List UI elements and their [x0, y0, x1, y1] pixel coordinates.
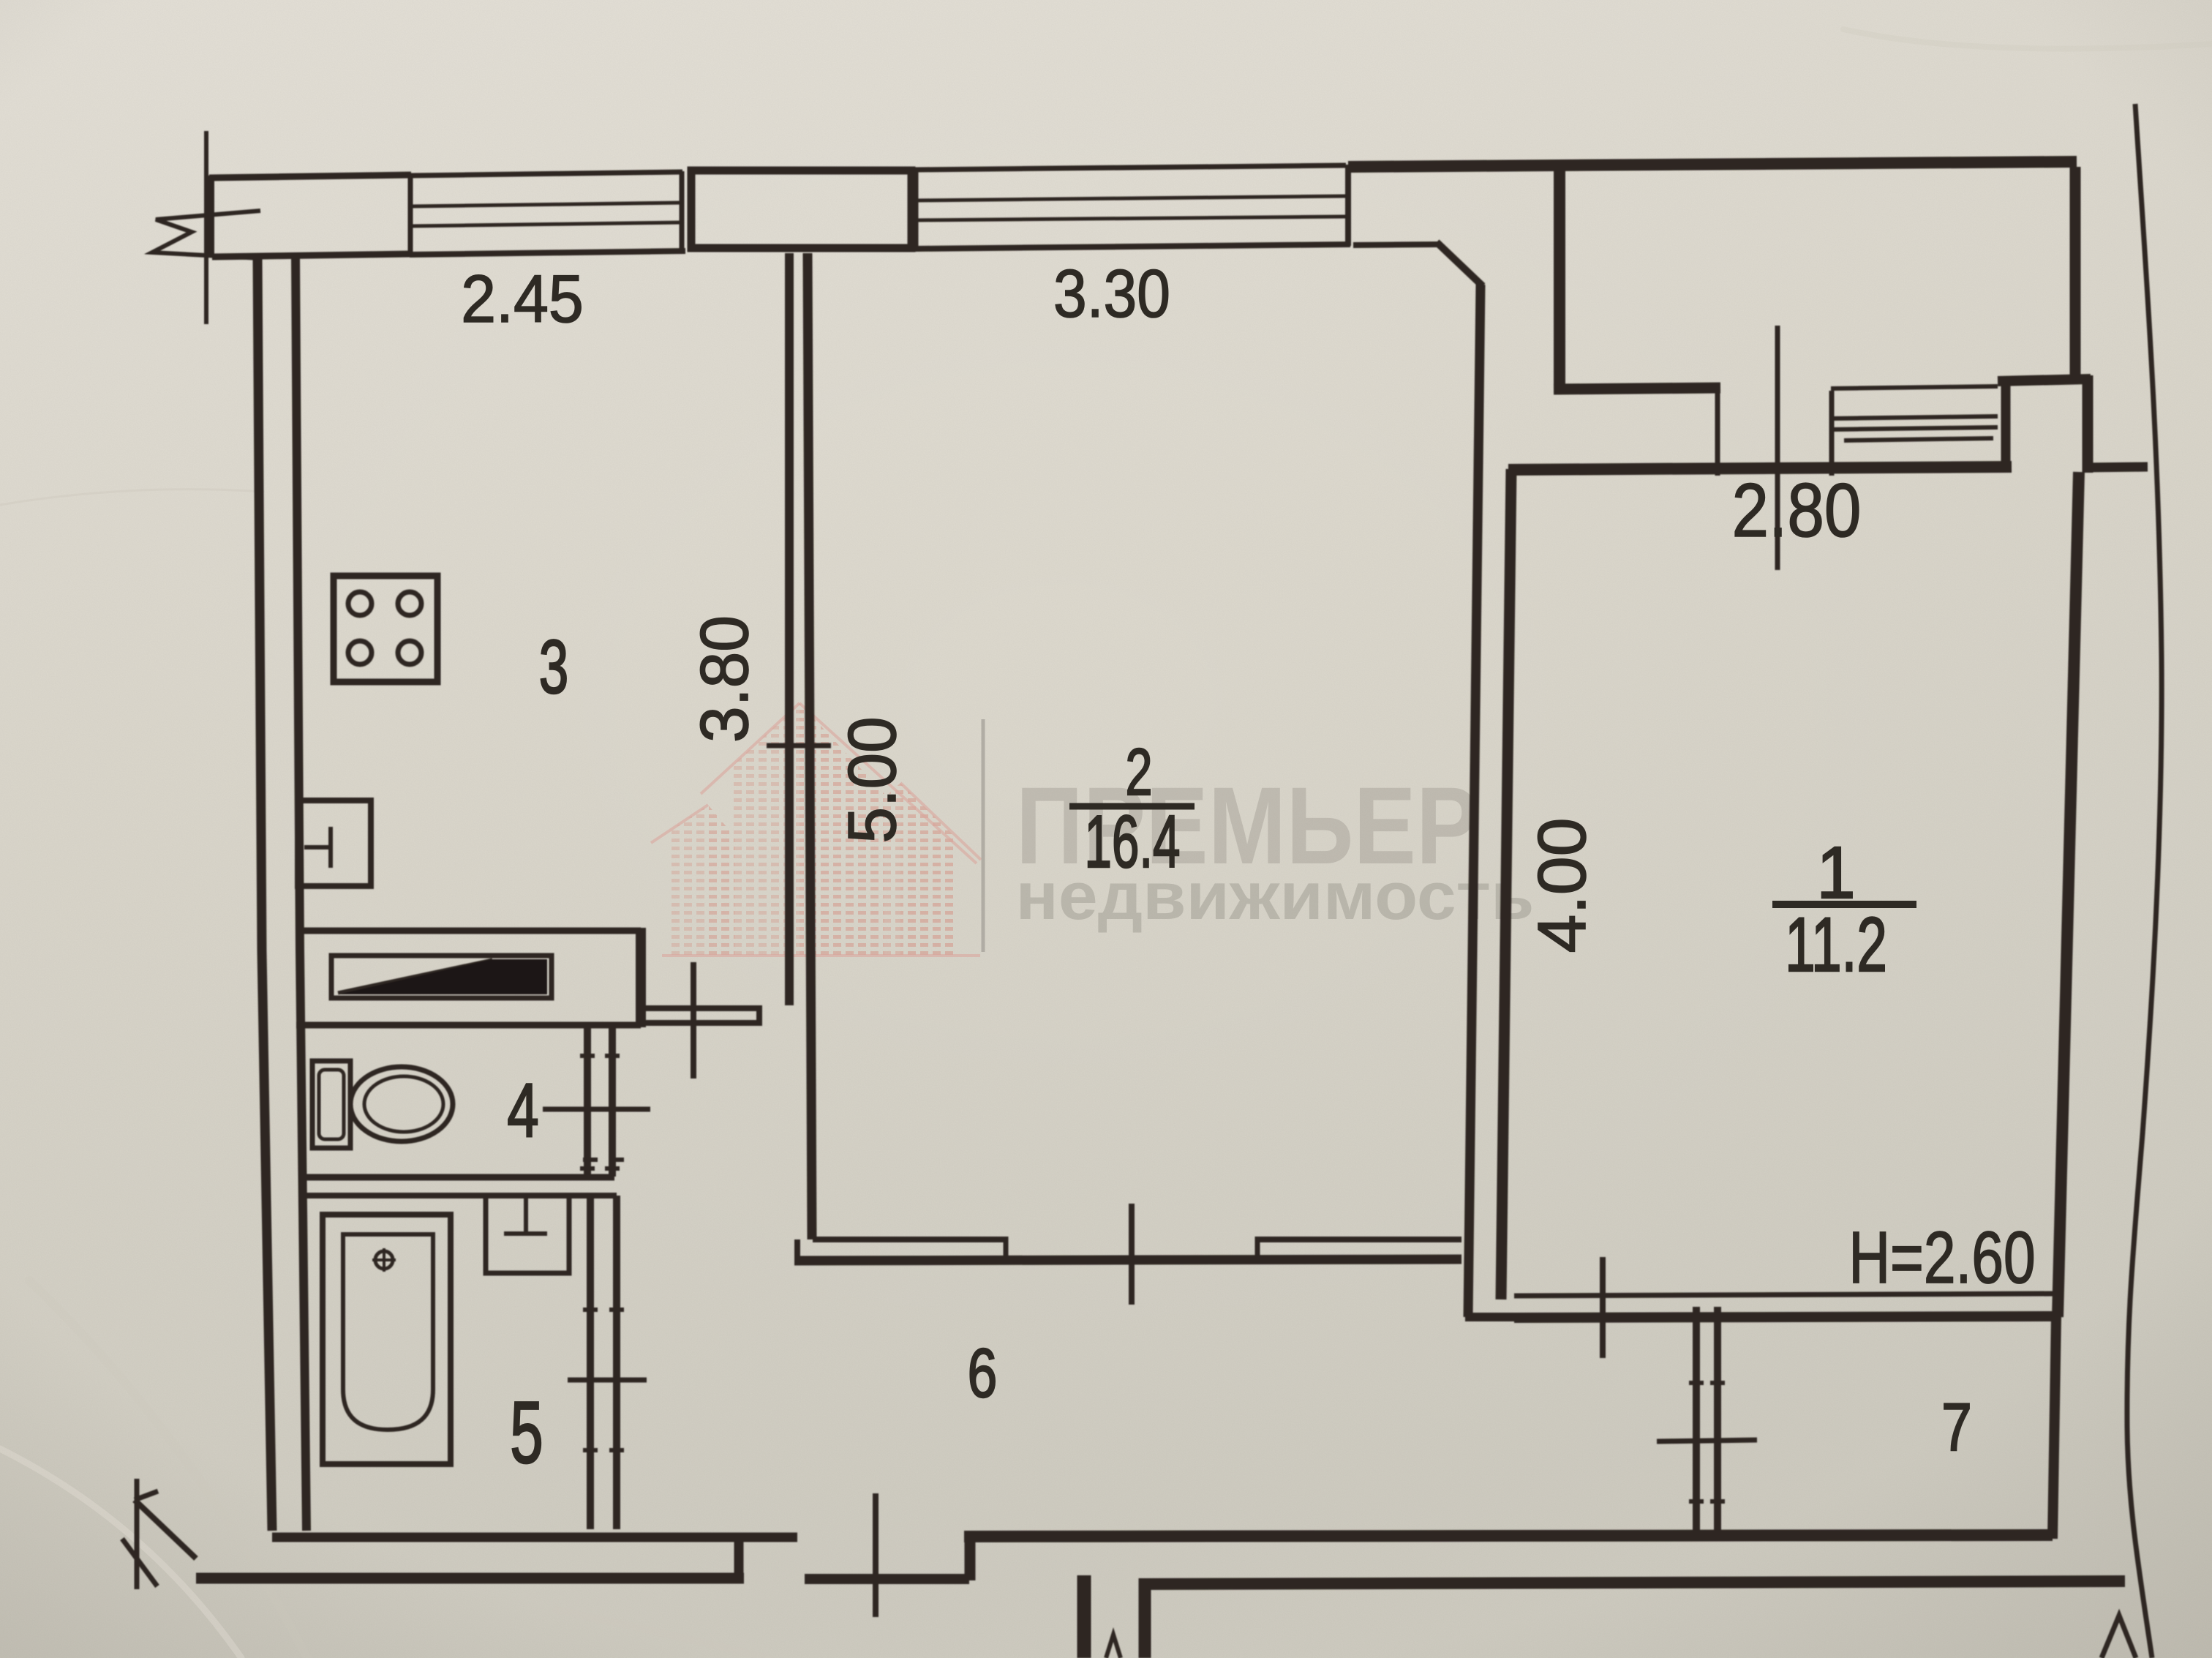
svg-text:5.00: 5.00 [835, 716, 910, 843]
svg-text:H=2.60: H=2.60 [1848, 1218, 2035, 1299]
svg-text:16.4: 16.4 [1085, 800, 1181, 883]
svg-text:5: 5 [510, 1383, 543, 1481]
svg-text:7: 7 [1941, 1389, 1971, 1464]
svg-text:2.80: 2.80 [1732, 468, 1862, 552]
svg-text:2: 2 [1125, 735, 1152, 809]
svg-text:2.45: 2.45 [461, 260, 584, 336]
svg-text:11.2: 11.2 [1785, 903, 1887, 988]
svg-text:3.30: 3.30 [1053, 255, 1170, 331]
svg-text:3.80: 3.80 [686, 615, 762, 743]
svg-text:3: 3 [539, 625, 568, 710]
svg-text:4.00: 4.00 [1524, 818, 1600, 953]
svg-text:6: 6 [968, 1334, 998, 1411]
svg-text:4: 4 [507, 1068, 538, 1152]
